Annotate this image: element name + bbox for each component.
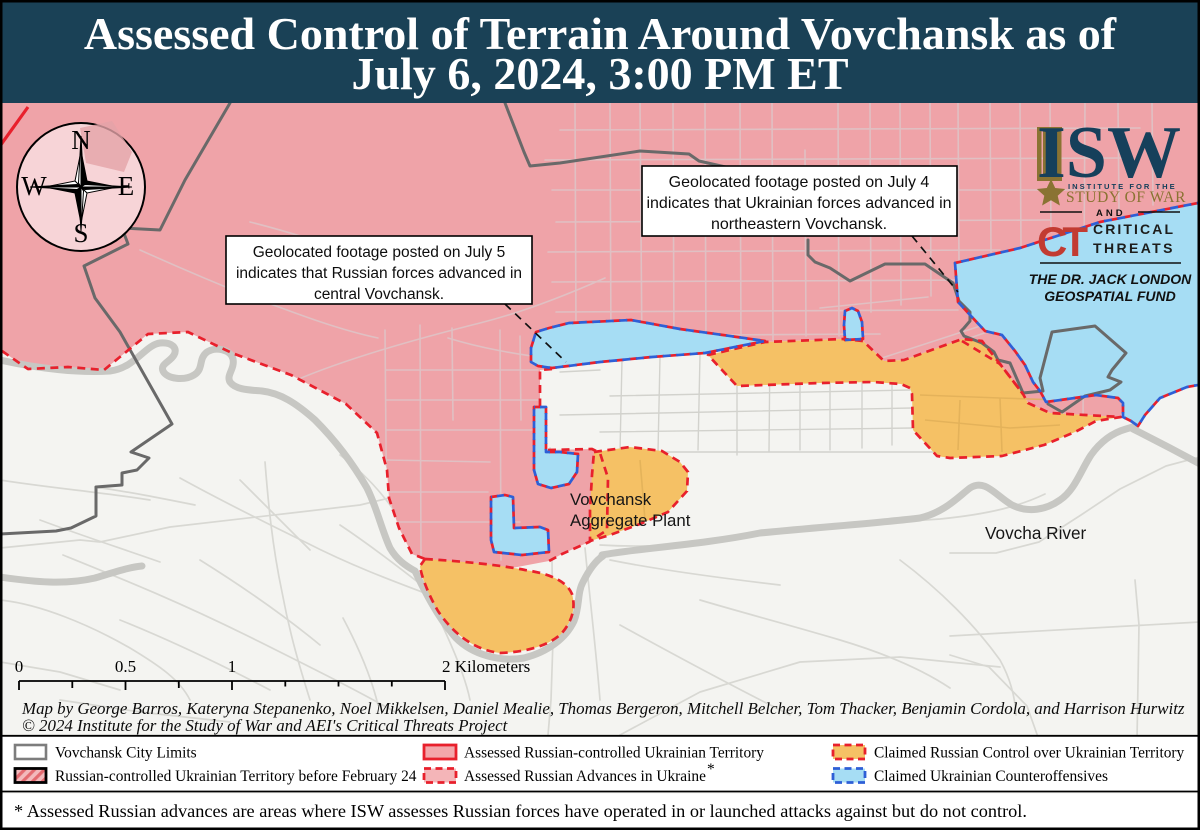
svg-text:E: E: [118, 171, 135, 201]
svg-text:0.5: 0.5: [115, 657, 136, 676]
svg-text:STUDY OF WAR: STUDY OF WAR: [1066, 189, 1186, 206]
svg-text:northeastern Vovchansk.: northeastern Vovchansk.: [711, 216, 887, 233]
svg-text:0: 0: [15, 657, 24, 676]
svg-text:indicates that Russian forces: indicates that Russian forces advanced i…: [236, 265, 522, 282]
svg-text:2 Kilometers: 2 Kilometers: [442, 657, 530, 676]
svg-text:CT: CT: [1037, 218, 1088, 265]
svg-text:*: *: [707, 761, 715, 778]
svg-text:Vovchansk City Limits: Vovchansk City Limits: [55, 745, 197, 762]
svg-text:GEOSPATIAL FUND: GEOSPATIAL FUND: [1044, 288, 1175, 304]
svg-text:S: S: [73, 218, 88, 248]
svg-text:Aggregate Plant: Aggregate Plant: [570, 511, 691, 530]
svg-text:W: W: [21, 171, 47, 201]
svg-text:Assessed Russian Advances in U: Assessed Russian Advances in Ukraine: [464, 768, 706, 785]
svg-text:Claimed Russian Control over U: Claimed Russian Control over Ukrainian T…: [874, 745, 1185, 762]
svg-text:* Assessed Russian advances ar: * Assessed Russian advances are areas wh…: [14, 801, 1027, 821]
svg-text:Geolocated footage posted on J: Geolocated footage posted on July 5: [253, 244, 506, 261]
svg-text:AND: AND: [1096, 208, 1126, 219]
svg-text:Russian-controlled Ukrainian T: Russian-controlled Ukrainian Territory b…: [55, 768, 417, 785]
svg-text:indicates that Ukrainian force: indicates that Ukrainian forces advanced…: [646, 195, 951, 212]
svg-text:© 2024 Institute for the Study: © 2024 Institute for the Study of War an…: [22, 716, 509, 735]
svg-text:CRITICAL: CRITICAL: [1093, 221, 1175, 237]
svg-text:Assessed Russian-controlled Uk: Assessed Russian-controlled Ukrainian Te…: [464, 745, 764, 762]
svg-text:Vovchansk: Vovchansk: [570, 490, 652, 509]
svg-text:Geolocated footage posted on J: Geolocated footage posted on July 4: [669, 174, 930, 191]
svg-text:Vovcha River: Vovcha River: [985, 523, 1087, 543]
svg-text:THE DR. JACK LONDON: THE DR. JACK LONDON: [1029, 271, 1192, 287]
svg-text:central Vovchansk.: central Vovchansk.: [314, 286, 444, 303]
svg-text:July 6, 2024, 3:00 PM ET: July 6, 2024, 3:00 PM ET: [351, 48, 848, 99]
svg-text:N: N: [71, 125, 91, 155]
svg-text:Claimed Ukrainian Counteroffen: Claimed Ukrainian Counteroffensives: [874, 768, 1108, 785]
svg-text:1: 1: [228, 657, 237, 676]
svg-text:THREATS: THREATS: [1093, 240, 1175, 256]
